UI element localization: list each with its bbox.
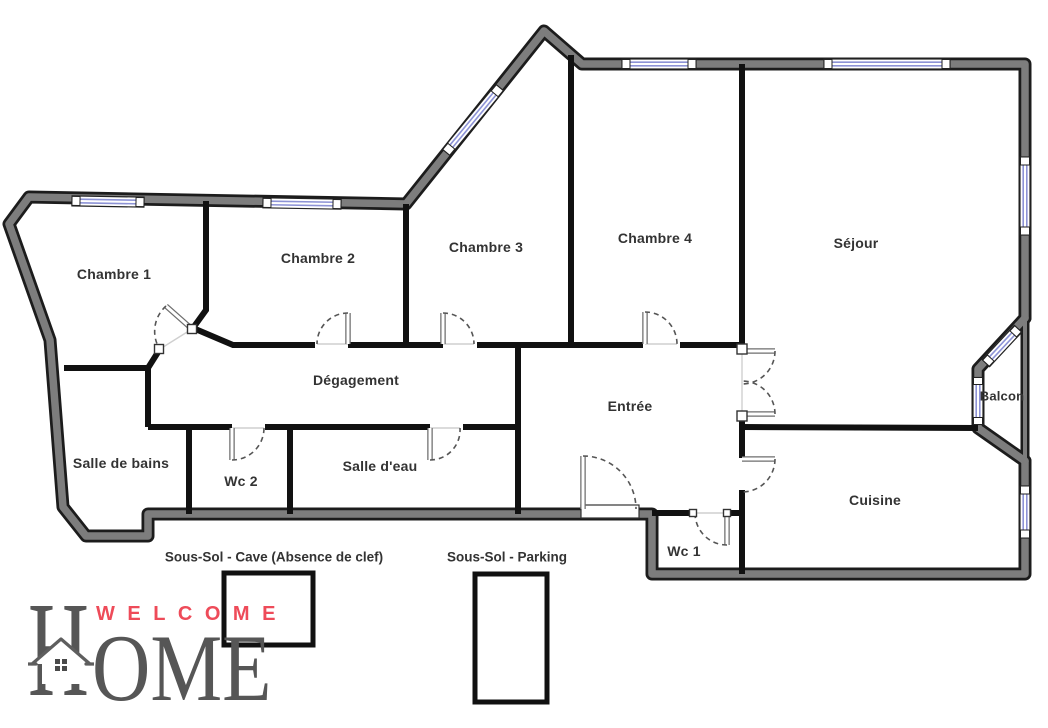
window-icon xyxy=(622,59,696,69)
window-icon xyxy=(1020,486,1030,538)
door-post xyxy=(724,510,731,517)
logo-welcome-text: WELCOME xyxy=(96,603,288,626)
room-label-sejour: Séjour xyxy=(834,235,879,251)
room-label-cuisine: Cuisine xyxy=(849,492,901,508)
room-label-chambre-3: Chambre 3 xyxy=(449,239,523,255)
window-icon xyxy=(824,59,950,69)
room-label-balcon: Balcon xyxy=(980,389,1025,404)
door-post xyxy=(737,411,747,421)
window-icon xyxy=(982,325,1021,366)
front-door-threshold xyxy=(581,505,639,518)
window-icon xyxy=(442,84,503,155)
door-post xyxy=(690,510,697,517)
room-label-chambre-1: Chambre 1 xyxy=(77,266,151,282)
basement-label-parking: Sous-Sol - Parking xyxy=(447,550,567,565)
room-label-wc-2: Wc 2 xyxy=(224,473,257,489)
door-post xyxy=(188,325,197,334)
room-label-wc-1: Wc 1 xyxy=(667,543,700,559)
basement-label-cave: Sous-Sol - Cave (Absence de clef) xyxy=(165,550,383,565)
window-icon xyxy=(1020,157,1030,235)
logo-ome-text: OME xyxy=(92,621,271,716)
door-post xyxy=(155,345,164,354)
room-label-salle-de-bains: Salle de bains xyxy=(73,455,169,471)
window-icon xyxy=(263,198,341,209)
room-label-salle-d-eau: Salle d'eau xyxy=(343,458,418,474)
door-post xyxy=(737,344,747,354)
room-label-degagement: Dégagement xyxy=(313,372,399,388)
room-label-chambre-4: Chambre 4 xyxy=(618,230,692,246)
windows xyxy=(72,59,1030,538)
room-label-chambre-2: Chambre 2 xyxy=(281,250,355,266)
parking-box xyxy=(475,574,547,702)
house-icon xyxy=(28,636,94,688)
window-icon xyxy=(72,196,144,207)
room-label-entree: Entrée xyxy=(608,398,653,414)
floorplan-page: Chambre 1 Chambre 2 Chambre 3 Chambre 4 … xyxy=(0,0,1048,728)
interior-walls xyxy=(64,55,978,574)
